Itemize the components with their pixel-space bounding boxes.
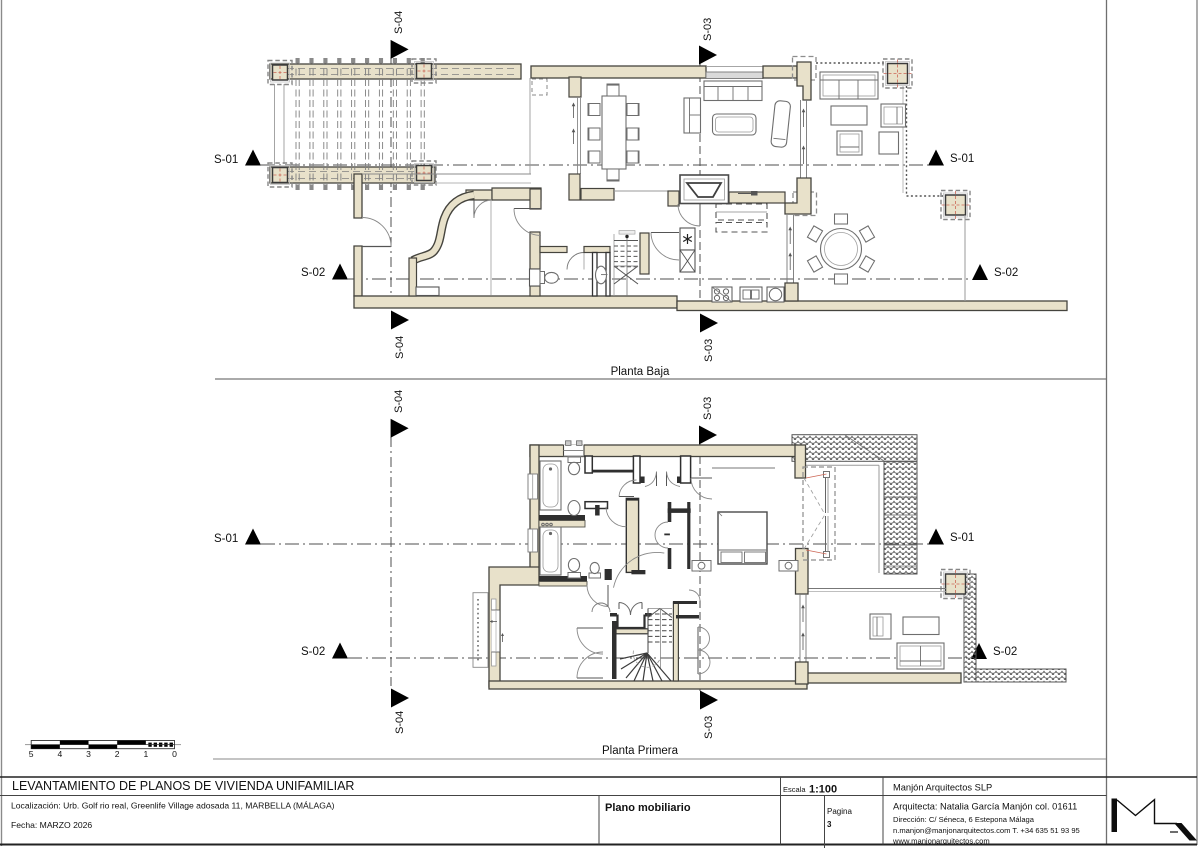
- svg-text:3: 3: [86, 749, 91, 759]
- svg-text:Escala: Escala: [783, 785, 806, 794]
- svg-text:1:100: 1:100: [809, 784, 837, 796]
- svg-text:S-04: S-04: [393, 11, 405, 34]
- svg-text:S-03: S-03: [703, 716, 715, 739]
- svg-text:S-03: S-03: [702, 397, 714, 420]
- svg-text:Localización: Urb. Golf rio r: Localización: Urb. Golf rio real, Greenl…: [11, 801, 335, 811]
- svg-text:Manjón Arquitectos SLP: Manjón Arquitectos SLP: [893, 783, 992, 793]
- svg-text:4: 4: [57, 749, 62, 759]
- svg-text:2: 2: [115, 749, 120, 759]
- svg-text:Arquitecta: Natalia García Man: Arquitecta: Natalia García Manjón col. 0…: [893, 802, 1077, 812]
- svg-text:S-03: S-03: [703, 339, 715, 362]
- svg-text:S-01: S-01: [950, 532, 974, 544]
- svg-text:S-01: S-01: [214, 154, 238, 166]
- svg-text:5: 5: [29, 749, 34, 759]
- svg-text:S-04: S-04: [393, 390, 405, 413]
- svg-text:S-01: S-01: [950, 153, 974, 165]
- svg-text:1: 1: [143, 749, 148, 759]
- svg-text:LEVANTAMIENTO DE PLANOS DE VIV: LEVANTAMIENTO DE PLANOS DE VIVIENDA UNIF…: [12, 779, 354, 793]
- svg-text:Planta Baja: Planta Baja: [611, 366, 670, 378]
- svg-text:S-03: S-03: [702, 18, 714, 41]
- svg-text:S-01: S-01: [214, 533, 238, 545]
- svg-text:www.manjonarquitectos.com: www.manjonarquitectos.com: [892, 837, 990, 846]
- svg-text:0: 0: [172, 749, 177, 759]
- svg-text:Plano mobiliario: Plano mobiliario: [605, 802, 691, 814]
- svg-text:n.manjon@manjonarquitectos.com: n.manjon@manjonarquitectos.com T. +34 63…: [893, 826, 1080, 835]
- svg-text:S-02: S-02: [301, 267, 325, 279]
- svg-text:S-04: S-04: [394, 711, 406, 734]
- svg-text:Planta Primera: Planta Primera: [602, 745, 679, 757]
- svg-text:S-02: S-02: [301, 646, 325, 658]
- svg-text:Dirección: C/ Séneca, 6 Estepo: Dirección: C/ Séneca, 6 Estepona Málaga: [893, 815, 1035, 824]
- svg-text:Fecha: MARZO 2026: Fecha: MARZO 2026: [11, 820, 92, 830]
- svg-text:S-02: S-02: [994, 267, 1018, 279]
- svg-text:Pagina: Pagina: [827, 807, 852, 816]
- svg-text:S-02: S-02: [993, 646, 1017, 658]
- svg-text:3: 3: [827, 820, 832, 829]
- svg-text:S-04: S-04: [394, 336, 406, 359]
